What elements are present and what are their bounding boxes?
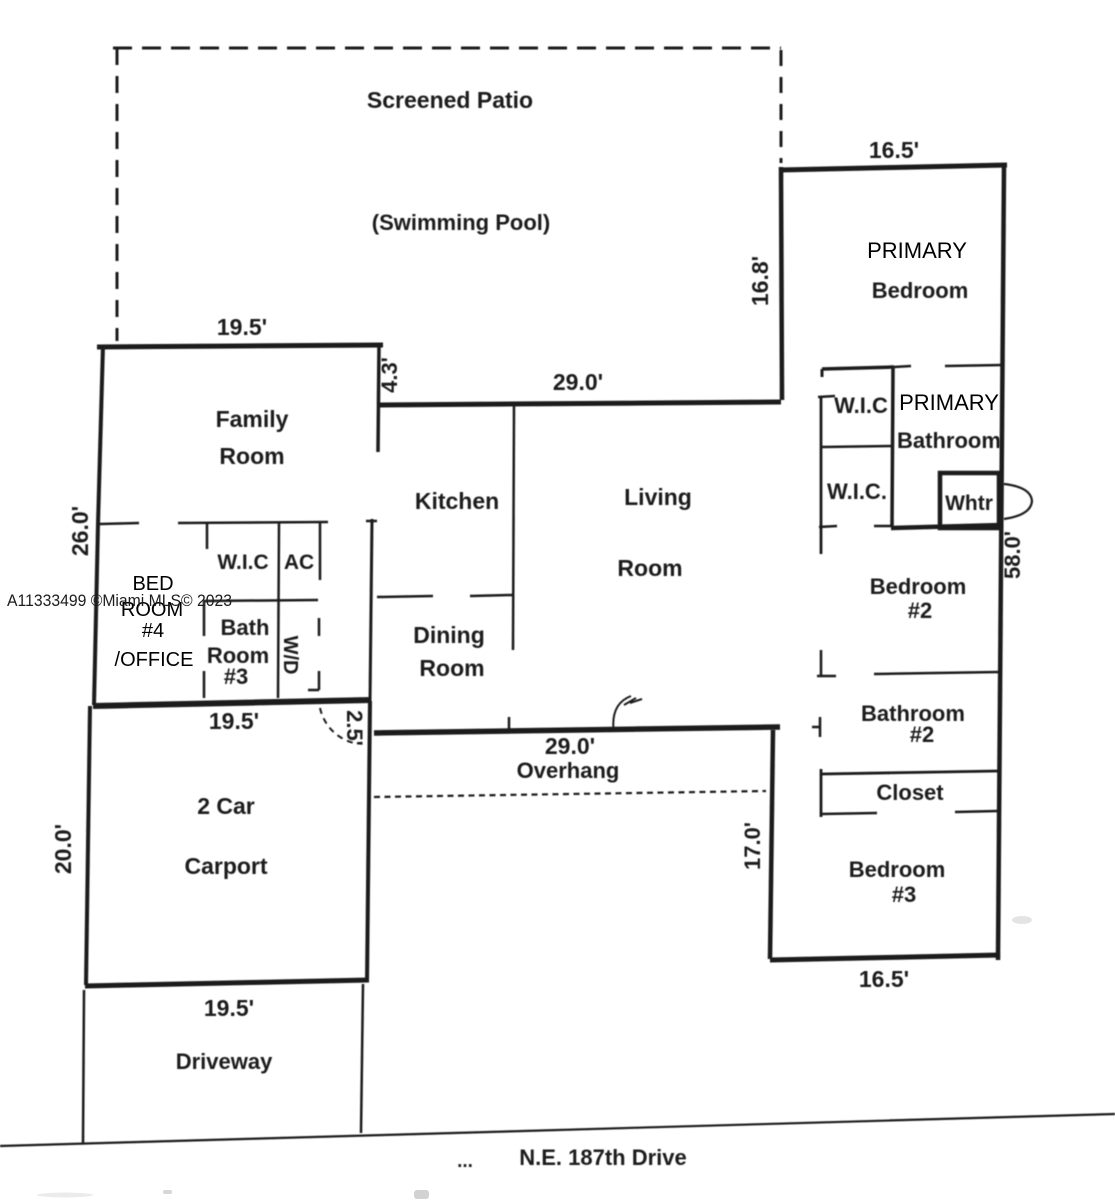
svg-text:Bathroom: Bathroom xyxy=(897,428,1001,453)
svg-text:2 Car: 2 Car xyxy=(197,793,255,819)
svg-text:20.0': 20.0' xyxy=(50,824,76,874)
svg-text:#2: #2 xyxy=(910,722,934,747)
svg-text:#4: #4 xyxy=(142,620,164,642)
svg-text:W.I.C: W.I.C xyxy=(217,551,268,574)
svg-text:29.0': 29.0' xyxy=(553,369,603,395)
svg-text:PRIMARY: PRIMARY xyxy=(899,390,999,415)
svg-text:Bedroom: Bedroom xyxy=(870,574,967,599)
svg-text:AC: AC xyxy=(284,551,314,574)
svg-text:Kitchen: Kitchen xyxy=(415,488,499,514)
svg-text:19.5': 19.5' xyxy=(209,708,259,734)
svg-text:Closet: Closet xyxy=(876,780,944,805)
svg-text:16.8': 16.8' xyxy=(747,256,773,306)
svg-text:Room: Room xyxy=(219,443,284,469)
svg-text:19.5': 19.5' xyxy=(204,995,254,1021)
svg-text:2.5': 2.5' xyxy=(342,710,367,746)
svg-text:16.5': 16.5' xyxy=(869,137,919,163)
svg-text:...: ... xyxy=(457,1151,473,1172)
svg-text:#3: #3 xyxy=(224,664,248,689)
svg-text:Dining: Dining xyxy=(413,622,485,648)
svg-text:(Swimming Pool): (Swimming Pool) xyxy=(372,210,550,235)
svg-text:#2: #2 xyxy=(908,598,932,623)
svg-text:Living: Living xyxy=(624,484,692,510)
svg-text:W.I.C.: W.I.C. xyxy=(827,479,887,504)
svg-text:W/D: W/D xyxy=(279,636,301,675)
svg-text:19.5': 19.5' xyxy=(217,314,267,340)
svg-text:Screened Patio: Screened Patio xyxy=(367,87,533,113)
svg-text:#3: #3 xyxy=(892,882,916,907)
svg-text:29.0': 29.0' xyxy=(545,733,595,759)
svg-text:PRIMARY: PRIMARY xyxy=(867,238,967,263)
svg-text:Room: Room xyxy=(419,655,484,681)
svg-text:A11333499 ©Miami MLS© 2023: A11333499 ©Miami MLS© 2023 xyxy=(7,591,232,610)
svg-text:17.0': 17.0' xyxy=(740,822,765,870)
svg-text:Bedroom: Bedroom xyxy=(872,278,969,303)
svg-text:Family: Family xyxy=(216,406,289,432)
svg-text:Driveway: Driveway xyxy=(176,1049,273,1074)
svg-text:58.0': 58.0' xyxy=(1000,531,1025,579)
svg-text:/OFFICE: /OFFICE xyxy=(115,649,194,671)
svg-text:Whtr: Whtr xyxy=(945,492,993,515)
svg-text:Bedroom: Bedroom xyxy=(849,857,946,882)
svg-text:Room: Room xyxy=(617,555,682,581)
svg-text:W.I.C: W.I.C xyxy=(834,393,888,418)
svg-text:Carport: Carport xyxy=(184,853,267,879)
svg-text:16.5': 16.5' xyxy=(859,966,909,992)
svg-text:Bath: Bath xyxy=(221,615,270,640)
svg-text:26.0': 26.0' xyxy=(67,506,93,556)
svg-text:4.3': 4.3' xyxy=(377,357,402,393)
svg-text:Overhang: Overhang xyxy=(517,758,620,783)
svg-text:N.E. 187th Drive: N.E. 187th Drive xyxy=(519,1145,687,1170)
